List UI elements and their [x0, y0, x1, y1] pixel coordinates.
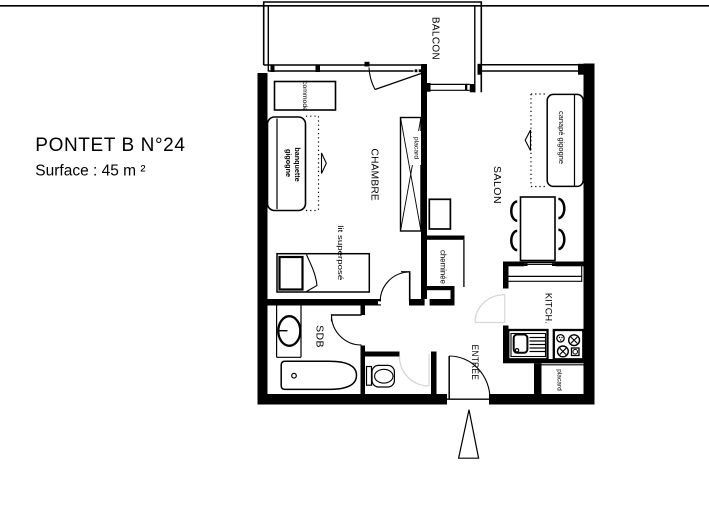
svg-text:KITCH.: KITCH.: [544, 293, 554, 324]
svg-text:cheminée: cheminée: [439, 250, 448, 284]
svg-text:canapé gigogne: canapé gigogne: [557, 111, 566, 164]
svg-text:placard: placard: [556, 369, 563, 391]
svg-text:CHAMBRE: CHAMBRE: [369, 149, 380, 201]
svg-text:banquette: banquette: [293, 147, 302, 181]
svg-text:SALON: SALON: [491, 166, 503, 204]
svg-text:placard: placard: [413, 137, 420, 160]
svg-text:PONTET B N°24: PONTET B N°24: [35, 135, 185, 156]
svg-text:commode: commode: [301, 81, 308, 111]
svg-text:ENTRÉE: ENTRÉE: [470, 345, 480, 381]
svg-text:Surface : 45 m ²: Surface : 45 m ²: [35, 163, 145, 180]
svg-text:SDB: SDB: [313, 325, 325, 348]
svg-text:gigogne: gigogne: [284, 149, 293, 177]
svg-text:BALCON: BALCON: [429, 17, 440, 60]
svg-text:lit superposé: lit superposé: [336, 225, 345, 280]
